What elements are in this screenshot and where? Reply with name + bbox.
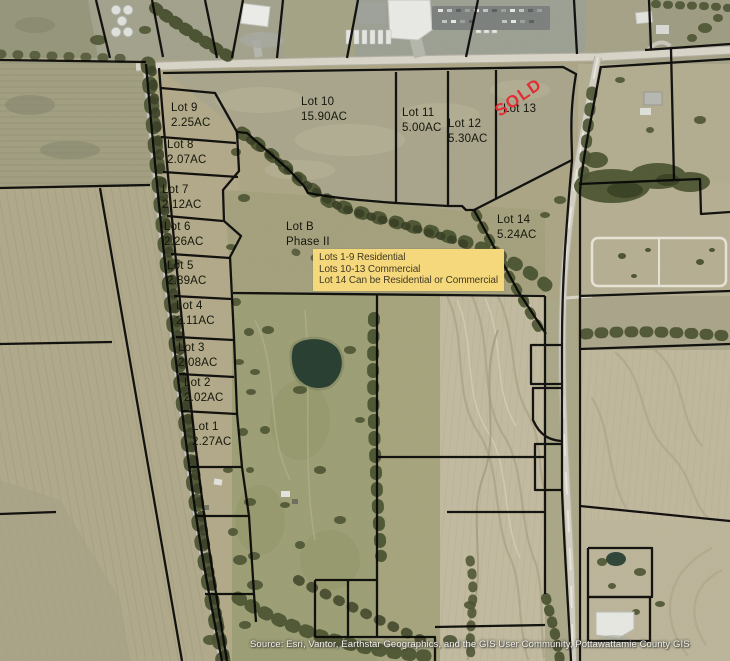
lot-name: Lot 4 bbox=[176, 299, 215, 314]
lot-name: Lot 2 bbox=[184, 376, 224, 391]
lot-area: 5.24AC bbox=[497, 228, 537, 243]
lot-12-label: Lot 12 5.30AC bbox=[448, 117, 488, 147]
lot-name: Lot 9 bbox=[171, 101, 211, 116]
lot-8-label: Lot 8 2.07AC bbox=[167, 138, 207, 168]
map-attribution: Source: Esri, Vantor, Earthstar Geograph… bbox=[250, 639, 728, 650]
lot-area: 2.89AC bbox=[167, 274, 207, 289]
lot-area: 2.07AC bbox=[167, 153, 207, 168]
lot-area: 15.90AC bbox=[301, 110, 347, 125]
lot-4-label: Lot 4 2.11AC bbox=[176, 299, 215, 329]
lot-5-label: Lot 5 2.89AC bbox=[167, 259, 207, 289]
lot-name: Lot 3 bbox=[178, 341, 218, 356]
lot-1-label: Lot 1 2.27AC bbox=[192, 420, 232, 450]
lot-2-label: Lot 2 2.02AC bbox=[184, 376, 224, 406]
lot-name: Lot 5 bbox=[167, 259, 207, 274]
map-viewport[interactable]: Lot 9 2.25AC Lot 8 2.07AC Lot 7 2.12AC L… bbox=[0, 0, 730, 661]
zoning-line-commercial: Lots 10-13 Commercial bbox=[319, 264, 498, 276]
lot-6-label: Lot 6 2.26AC bbox=[164, 220, 204, 250]
lot-9-label: Lot 9 2.25AC bbox=[171, 101, 211, 131]
lot-11-label: Lot 11 5.00AC bbox=[402, 106, 442, 136]
zoning-info-box: Lots 1-9 Residential Lots 10-13 Commerci… bbox=[313, 249, 504, 291]
lot-3-label: Lot 3 2.08AC bbox=[178, 341, 218, 371]
lot-b-label: Lot B Phase II bbox=[286, 220, 330, 250]
lot-area: 2.25AC bbox=[171, 116, 211, 131]
lot-area: 2.08AC bbox=[178, 356, 218, 371]
lot-name: Lot 11 bbox=[402, 106, 442, 121]
lot-area: 2.02AC bbox=[184, 391, 224, 406]
lot-name: Lot 7 bbox=[162, 183, 202, 198]
lot-7-label: Lot 7 2.12AC bbox=[162, 183, 202, 213]
lot-area: 5.00AC bbox=[402, 121, 442, 136]
lot-name: Lot 8 bbox=[167, 138, 207, 153]
lot-name: Lot 12 bbox=[448, 117, 488, 132]
lot-area: 5.30AC bbox=[448, 132, 488, 147]
zoning-line-residential: Lots 1-9 Residential bbox=[319, 252, 498, 264]
lot-10-label: Lot 10 15.90AC bbox=[301, 95, 347, 125]
aerial-imagery bbox=[0, 0, 730, 661]
lot-area: 2.11AC bbox=[176, 314, 215, 329]
lot-name: Lot 14 bbox=[497, 213, 537, 228]
zoning-line-lot14: Lot 14 Can be Residential or Commercial bbox=[319, 275, 498, 287]
lot-name: Lot 1 bbox=[192, 420, 232, 435]
lot-area: 2.12AC bbox=[162, 198, 202, 213]
lot-name: Lot B bbox=[286, 220, 330, 235]
lot-phase: Phase II bbox=[286, 235, 330, 250]
lot-name: Lot 10 bbox=[301, 95, 347, 110]
lot-area: 2.26AC bbox=[164, 235, 204, 250]
lot-area: 2.27AC bbox=[192, 435, 232, 450]
lot-name: Lot 6 bbox=[164, 220, 204, 235]
lot-14-label: Lot 14 5.24AC bbox=[497, 213, 537, 243]
